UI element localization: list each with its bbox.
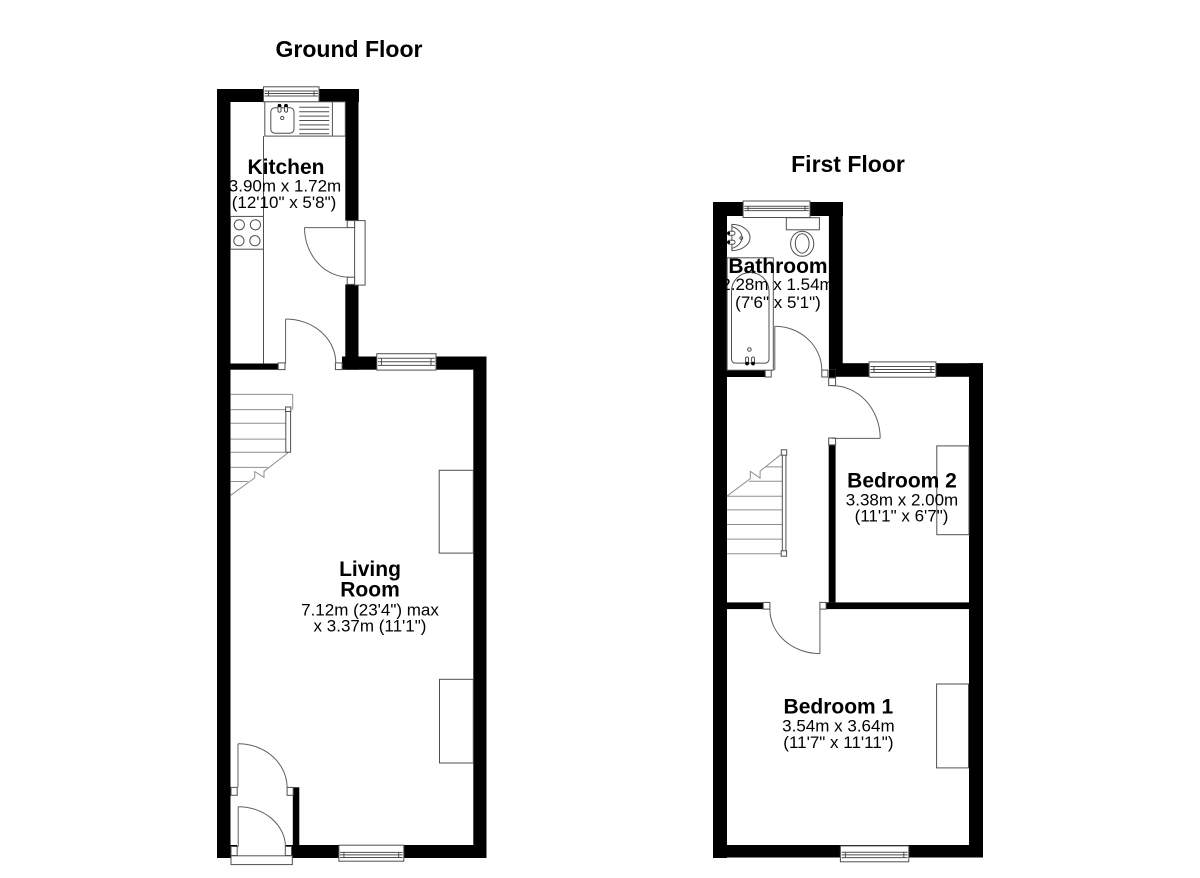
svg-text:Bedroom 2: Bedroom 2 bbox=[847, 470, 957, 493]
svg-text:(12'10" x 5'8"): (12'10" x 5'8") bbox=[232, 193, 337, 212]
svg-text:x 3.37m (11'1"): x 3.37m (11'1") bbox=[314, 617, 427, 636]
svg-text:(11'7" x 11'11"): (11'7" x 11'11") bbox=[783, 733, 893, 752]
svg-text:(7'6" x 5'1"): (7'6" x 5'1") bbox=[735, 293, 821, 312]
svg-text:(11'1" x 6'7"): (11'1" x 6'7") bbox=[855, 507, 949, 526]
svg-text:Ground Floor: Ground Floor bbox=[276, 36, 423, 62]
svg-text:2.28m x 1.54m: 2.28m x 1.54m bbox=[721, 275, 833, 294]
svg-text:First Floor: First Floor bbox=[791, 151, 905, 177]
svg-text:Bedroom 1: Bedroom 1 bbox=[784, 695, 894, 718]
svg-text:Room: Room bbox=[340, 578, 400, 601]
